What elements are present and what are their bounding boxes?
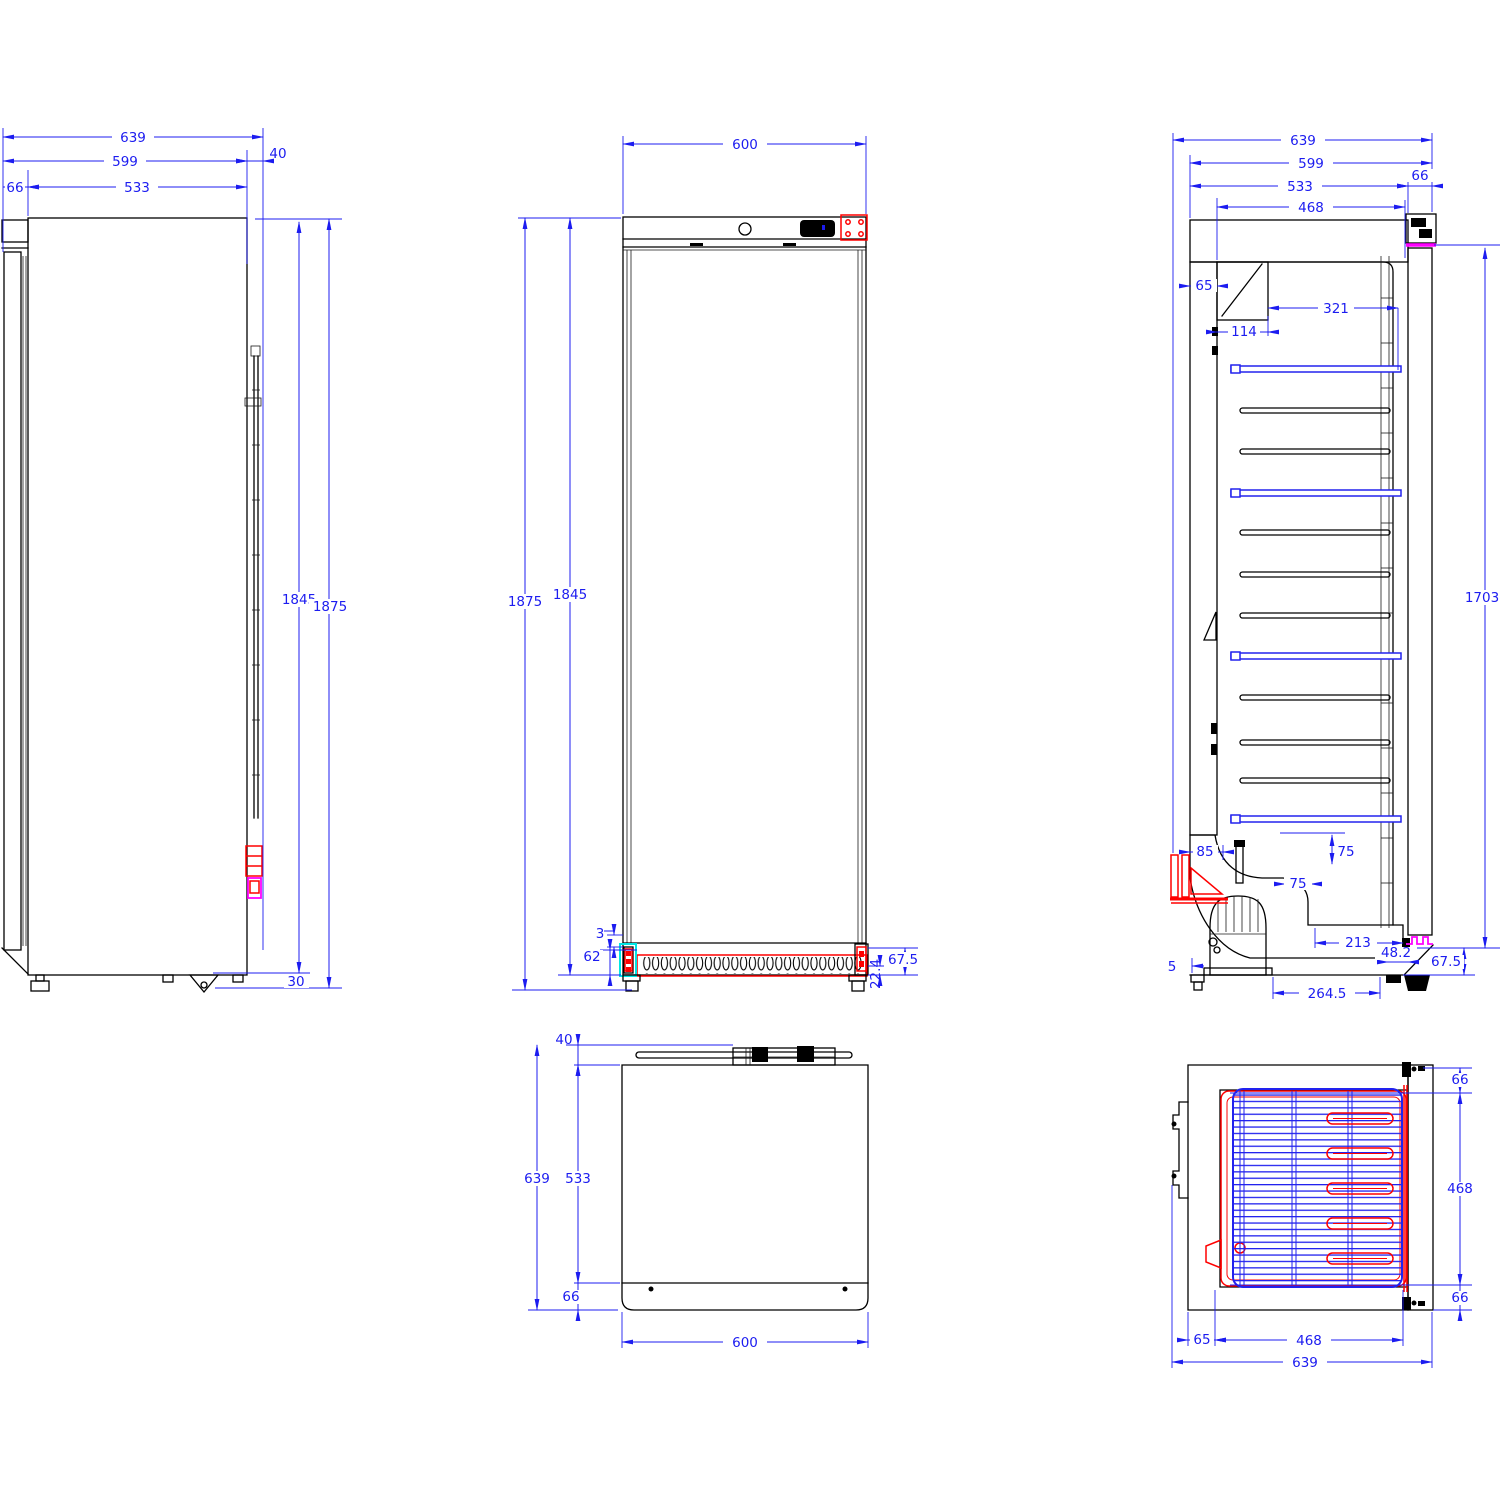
top-dim-rear-clearance: 40 <box>555 1032 572 1048</box>
section-dim-depth-body: 599 <box>1298 156 1324 172</box>
section-view: 639 599 533 66 468 65 114 321 1703 <box>1168 133 1500 1002</box>
top-view: 40 639 533 66 600 <box>515 1032 868 1351</box>
section-dim-body: 533 <box>1287 179 1313 195</box>
plan-dim-side-wall: 65 <box>1193 1332 1210 1348</box>
top-hinge-section <box>1406 214 1436 245</box>
top-dim-body: 533 <box>565 1171 591 1187</box>
front-dim-height-body: 1845 <box>553 587 587 603</box>
section-dim-base-height: 67.5 <box>1431 954 1461 970</box>
door-liner-brackets <box>1381 298 1393 883</box>
section-dim-foot-offset: 5 <box>1168 959 1177 975</box>
front-dim-width: 600 <box>732 137 758 153</box>
side-view: 639 599 40 533 66 1845 1875 30 <box>2 128 351 992</box>
plan-dim-back-wall: 66 <box>1451 1290 1468 1306</box>
side-dim-door: 66 <box>6 180 23 196</box>
side-dim-depth-total: 639 <box>120 130 146 146</box>
top-dim-door: 66 <box>562 1289 579 1305</box>
section-dim-step-width: 75 <box>1289 876 1306 892</box>
section-dim-door-height: 1703 <box>1465 590 1499 606</box>
door-top-hinge <box>2 220 28 242</box>
plan-dim-liner-depth: 468 <box>1447 1181 1473 1197</box>
rear-bracket-plan <box>1172 1102 1189 1198</box>
plan-section-view: 66 468 66 65 468 639 <box>1172 1062 1481 1371</box>
technical-drawing-canvas: 639 599 40 533 66 1845 1875 30 <box>0 0 1500 1500</box>
door-gasket-bottom <box>1406 937 1433 944</box>
drain-notch <box>1204 612 1216 640</box>
drain-tube <box>1236 845 1243 883</box>
section-dim-back-wall: 65 <box>1195 278 1212 294</box>
top-dim-depth-total: 639 <box>524 1171 550 1187</box>
rear-castor-bracket <box>190 975 218 992</box>
front-dim-recess: 22.4 <box>868 959 884 989</box>
wire-shelves <box>1231 365 1401 823</box>
liner-notch <box>1206 1240 1221 1268</box>
side-dim-foot-height: 30 <box>287 974 304 990</box>
cad-drawing: 639 599 40 533 66 1845 1875 30 <box>0 0 1500 1500</box>
front-dim-base-height: 67.5 <box>888 952 918 968</box>
section-dim-evap-depth: 114 <box>1231 324 1257 340</box>
plan-dim-door: 66 <box>1451 1072 1468 1088</box>
section-dim-door-thickness: 66 <box>1411 168 1428 184</box>
temperature-display <box>800 220 835 237</box>
door-plan-section <box>1408 1065 1433 1310</box>
side-dim-body: 533 <box>124 180 150 196</box>
door-foot <box>1404 975 1430 991</box>
section-dim-door-offset: 48.2 <box>1381 945 1411 961</box>
brand-logo <box>739 223 751 235</box>
side-dim-rear-clearance: 40 <box>269 146 286 162</box>
side-dim-height-total: 1875 <box>313 599 347 615</box>
plan-dim-depth-total: 639 <box>1292 1355 1318 1371</box>
front-dim-plinth: 62 <box>583 949 600 965</box>
section-dim-drain-offset: 85 <box>1196 844 1213 860</box>
front-dim-gap: 3 <box>596 926 605 942</box>
insulation-top <box>1190 220 1408 262</box>
section-dim-step-height: 75 <box>1337 844 1354 860</box>
section-dim-depth-total: 639 <box>1290 133 1316 149</box>
condenser-bracket <box>1170 855 1228 903</box>
front-foot <box>31 981 49 991</box>
evaporator-box <box>1217 262 1268 320</box>
hinge-bottom-plan <box>1402 1297 1425 1310</box>
top-hinge-assembly <box>636 1046 852 1065</box>
section-dim-recess-depth: 213 <box>1345 935 1371 951</box>
top-dim-width: 600 <box>732 1335 758 1351</box>
section-dim-liner-depth: 468 <box>1298 200 1324 216</box>
rear-valve-detail <box>246 846 262 898</box>
hinge-top-plan <box>1402 1062 1425 1077</box>
shelf-rails <box>1240 408 1390 783</box>
top-hinge-plate <box>841 215 867 240</box>
door-slab <box>4 252 21 950</box>
plan-dim-liner-width: 468 <box>1296 1333 1322 1349</box>
side-dim-depth-body: 599 <box>112 154 138 170</box>
front-view: 600 1875 1845 3 62 67.5 22.4 <box>504 136 922 991</box>
compressor <box>1204 896 1272 975</box>
inner-liner <box>1217 262 1393 925</box>
section-dim-compartment: 264.5 <box>1308 986 1347 1002</box>
door-section <box>1408 248 1432 935</box>
section-dim-shelf-depth: 321 <box>1323 301 1349 317</box>
front-dim-height-total: 1875 <box>508 594 542 610</box>
